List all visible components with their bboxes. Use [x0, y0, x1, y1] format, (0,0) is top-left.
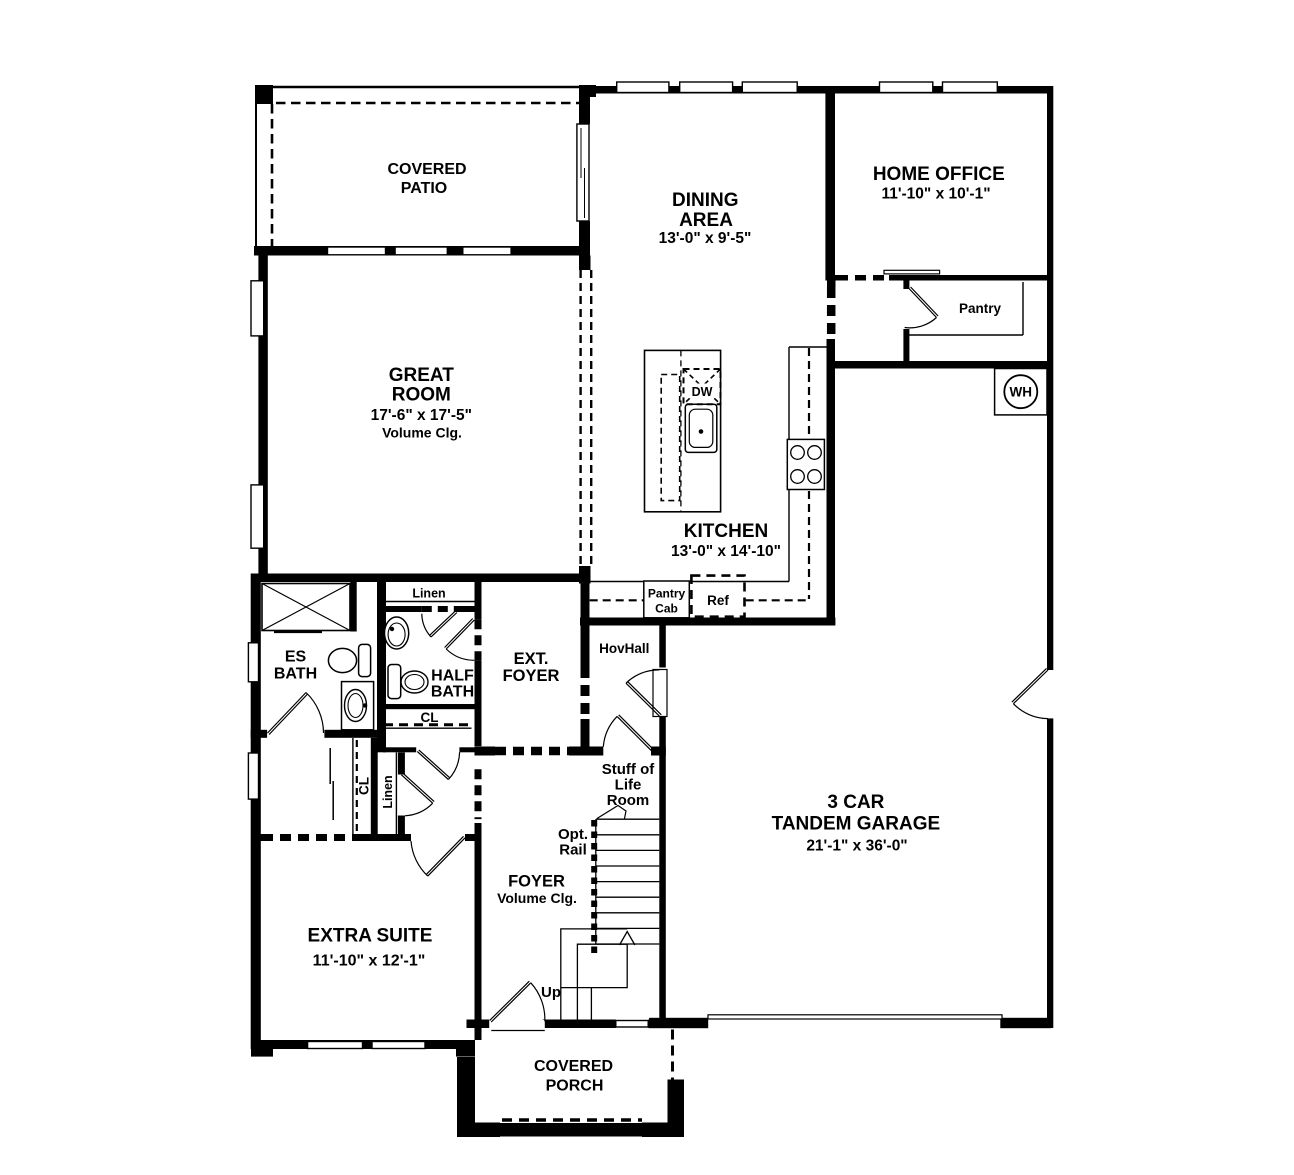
svg-text:ES: ES [285, 649, 307, 666]
svg-text:DW: DW [692, 385, 713, 399]
svg-text:FOYER: FOYER [508, 873, 565, 891]
svg-text:HOME OFFICE: HOME OFFICE [873, 164, 1005, 185]
svg-text:TANDEM GARAGE: TANDEM GARAGE [772, 814, 941, 835]
svg-text:13'-0" x 14'-10": 13'-0" x 14'-10" [671, 543, 781, 560]
svg-text:CL: CL [357, 777, 372, 795]
svg-text:COVERED: COVERED [534, 1058, 613, 1075]
svg-text:Pantry: Pantry [959, 301, 1002, 316]
svg-text:17'-6" x 17'-5": 17'-6" x 17'-5" [371, 407, 472, 424]
svg-text:Volume Clg.: Volume Clg. [382, 425, 462, 441]
svg-text:Life: Life [615, 777, 642, 794]
svg-text:13'-0" x 9'-5": 13'-0" x 9'-5" [659, 230, 752, 247]
svg-text:Stuff of: Stuff of [602, 761, 655, 778]
svg-text:DINING: DINING [672, 190, 739, 211]
svg-text:GREAT: GREAT [389, 365, 454, 386]
svg-text:KITCHEN: KITCHEN [684, 521, 768, 542]
svg-text:Volume Clg.: Volume Clg. [497, 890, 577, 906]
svg-text:Linen: Linen [412, 587, 445, 601]
svg-text:Rail: Rail [559, 842, 587, 859]
svg-text:COVERED: COVERED [387, 161, 466, 178]
svg-text:PATIO: PATIO [401, 180, 448, 197]
svg-text:HovHall: HovHall [599, 641, 649, 656]
svg-text:Up: Up [541, 984, 561, 1001]
svg-text:Cab: Cab [655, 602, 678, 616]
svg-text:BATH: BATH [274, 666, 317, 683]
svg-text:Ref: Ref [707, 593, 729, 608]
svg-text:11'-10" x 10'-1": 11'-10" x 10'-1" [881, 186, 990, 203]
svg-text:CL: CL [421, 710, 439, 725]
svg-text:Opt.: Opt. [558, 826, 588, 843]
svg-text:FOYER: FOYER [503, 667, 560, 685]
svg-text:Room: Room [607, 792, 650, 809]
svg-text:Pantry: Pantry [648, 587, 686, 601]
svg-text:21'-1" x 36'-0": 21'-1" x 36'-0" [806, 838, 907, 855]
svg-text:EXT.: EXT. [514, 650, 549, 668]
svg-text:WH: WH [1010, 385, 1033, 400]
svg-text:Linen: Linen [381, 775, 395, 808]
svg-text:ROOM: ROOM [392, 385, 451, 406]
svg-text:AREA: AREA [679, 210, 733, 231]
svg-text:EXTRA SUITE: EXTRA SUITE [308, 926, 433, 947]
svg-text:HALF: HALF [431, 668, 474, 685]
svg-text:11'-10" x 12'-1": 11'-10" x 12'-1" [313, 953, 426, 970]
svg-text:BATH: BATH [431, 684, 474, 701]
svg-text:3 CAR: 3 CAR [827, 792, 884, 813]
svg-text:PORCH: PORCH [546, 1078, 604, 1095]
